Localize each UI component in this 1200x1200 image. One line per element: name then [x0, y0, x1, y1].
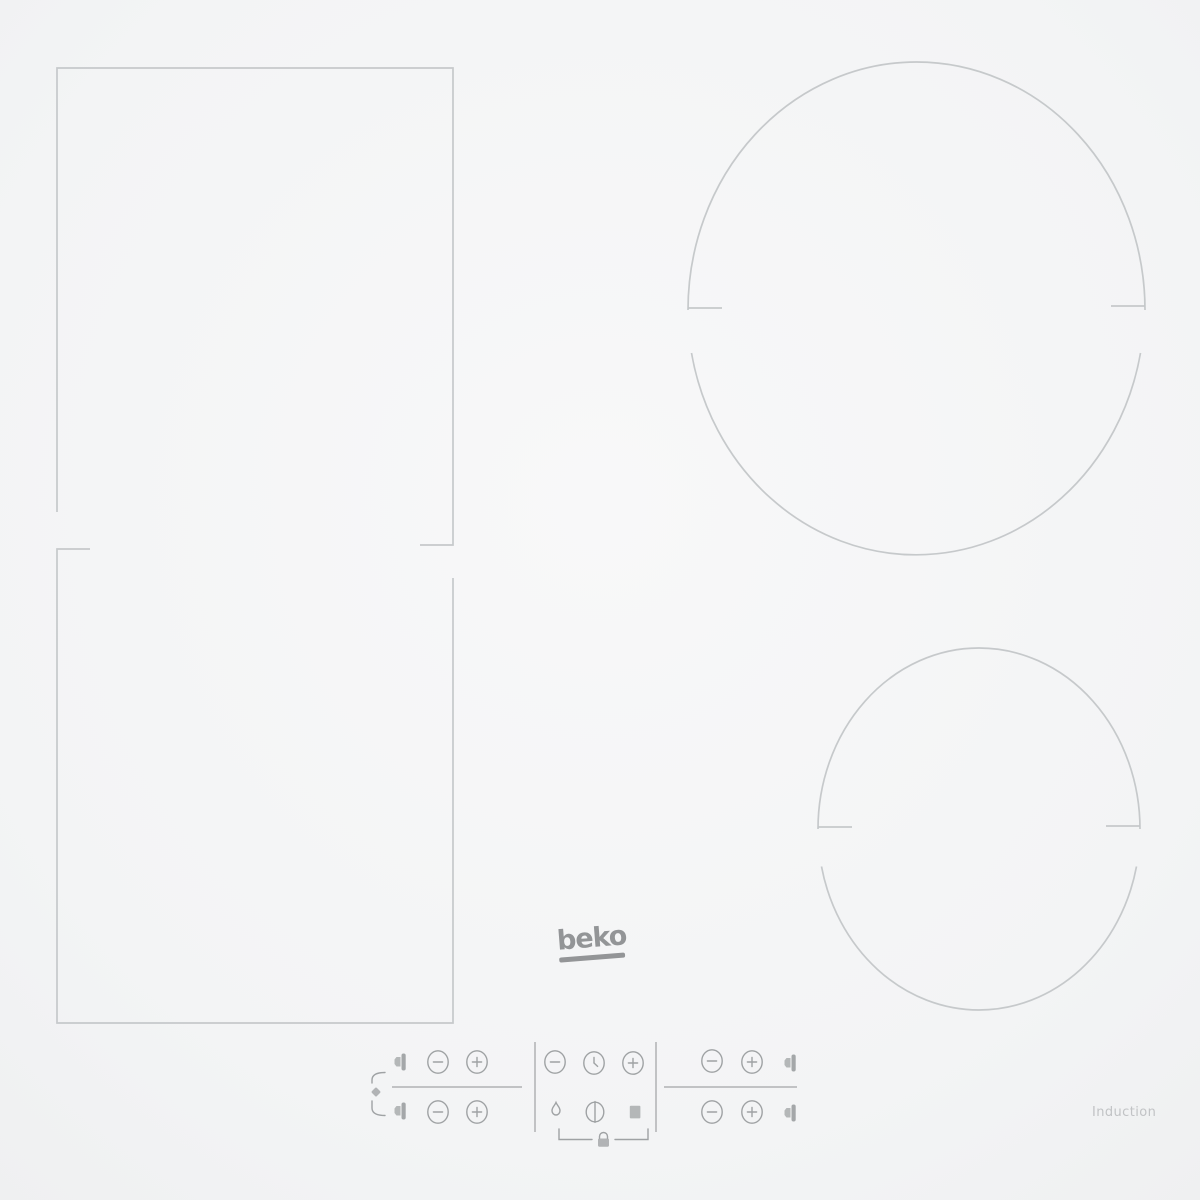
minus-icon [699, 1048, 725, 1074]
power-button[interactable] [582, 1099, 608, 1125]
zone-right-upper-minus-button[interactable] [699, 1048, 725, 1074]
minus-icon [425, 1099, 451, 1125]
induction-hob-surface: beko Induction [0, 0, 1200, 1200]
zone-indicator-icon [388, 1098, 414, 1124]
flexi-upper-plus-button[interactable] [464, 1049, 490, 1075]
zone-indicator-icon [388, 1049, 414, 1075]
panel-divider-right [655, 1042, 657, 1132]
plus-icon [739, 1049, 765, 1075]
zone-indicator-lower-left [388, 1098, 414, 1124]
minus-icon [699, 1099, 725, 1125]
zone-markings [0, 0, 1200, 1200]
timer-minus-button[interactable] [542, 1049, 568, 1075]
minus-icon [542, 1049, 568, 1075]
plus-icon [464, 1099, 490, 1125]
flexi-upper-minus-button[interactable] [425, 1049, 451, 1075]
zone-right-row-divider [664, 1086, 797, 1088]
cooking-zone-small [818, 648, 1140, 1010]
boost-button[interactable] [543, 1098, 569, 1124]
key-lock-button[interactable] [598, 1133, 609, 1147]
zone-right-upper-plus-button[interactable] [739, 1049, 765, 1075]
timer-clock-icon [581, 1050, 607, 1076]
flexi-zone-upper [57, 68, 453, 545]
timer-button[interactable] [581, 1050, 607, 1076]
flexi-link-bracket [364, 1070, 390, 1120]
minus-icon [425, 1049, 451, 1075]
key-lock-bracket [557, 1127, 651, 1149]
zone-right-lower-minus-button[interactable] [699, 1099, 725, 1125]
induction-label: Induction [1092, 1105, 1156, 1120]
power-icon [582, 1099, 608, 1125]
beko-logo: beko [555, 923, 629, 962]
plus-icon [620, 1050, 646, 1076]
flexi-zone-lower [57, 549, 453, 1023]
zone-indicator-upper-right [778, 1050, 804, 1076]
beko-logo-text: beko [555, 923, 629, 955]
timer-plus-button[interactable] [620, 1050, 646, 1076]
zone-right-lower-plus-button[interactable] [739, 1099, 765, 1125]
zone-indicator-upper-left [388, 1049, 414, 1075]
panel-divider-left [534, 1042, 536, 1132]
pause-square-icon [622, 1099, 648, 1125]
flexi-link-icon [371, 1087, 381, 1097]
plus-icon [739, 1099, 765, 1125]
flexi-lower-minus-button[interactable] [425, 1099, 451, 1125]
cooking-zone-large [688, 62, 1145, 555]
flexi-lower-plus-button[interactable] [464, 1099, 490, 1125]
plus-icon [464, 1049, 490, 1075]
zone-indicator-icon [778, 1100, 804, 1126]
zone-indicator-lower-right [778, 1100, 804, 1126]
flexi-row-divider [392, 1086, 522, 1088]
flame-icon [543, 1098, 569, 1124]
zone-indicator-icon [778, 1050, 804, 1076]
pause-button[interactable] [622, 1099, 648, 1125]
